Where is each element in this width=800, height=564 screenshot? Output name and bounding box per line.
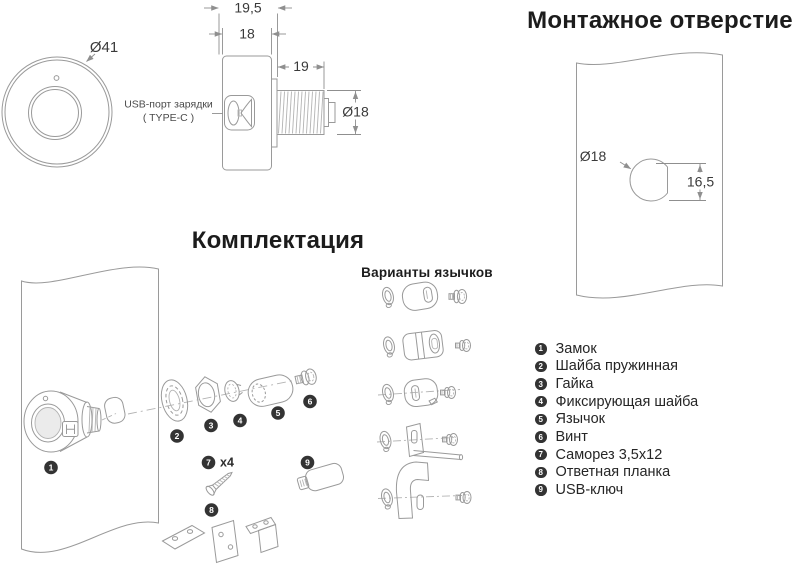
part-number-badge: 2: [535, 361, 547, 373]
svg-text:5: 5: [276, 408, 281, 418]
part-label: Замок: [556, 341, 597, 357]
parts-list-item: 3 Гайка: [535, 375, 698, 393]
part-badge-1: 1: [44, 461, 58, 475]
parts-list-item: 5 Язычок: [535, 411, 698, 429]
part-label: Шайба пружинная: [556, 358, 678, 374]
parts-list-item: 9 USB-ключ: [535, 481, 698, 499]
part-label: Язычок: [556, 411, 606, 427]
part-label: Ответная планка: [556, 464, 671, 480]
part-badge-8: 8: [205, 503, 219, 517]
part-number-badge: 9: [535, 484, 547, 496]
part-label: Фиксирующая шайба: [556, 394, 699, 410]
kit-title: Комплектация: [178, 227, 378, 255]
svg-text:1: 1: [49, 463, 54, 473]
svg-text:7: 7: [206, 458, 211, 468]
part-number-badge: 5: [535, 414, 547, 426]
parts-list-item: 4 Фиксирующая шайба: [535, 393, 698, 411]
svg-text:8: 8: [209, 505, 214, 515]
svg-text:3: 3: [209, 421, 214, 431]
part-number-badge: 3: [535, 378, 547, 390]
part-label: USB-ключ: [556, 482, 624, 498]
usb-label-line1: USB-порт зарядки: [124, 99, 213, 111]
parts-list-item: 2 Шайба пружинная: [535, 358, 698, 376]
svg-text:4: 4: [238, 416, 243, 426]
part-badge-4: 4: [233, 414, 247, 428]
screw-quantity-label: x4: [220, 456, 234, 470]
part-number-badge: 6: [535, 431, 547, 443]
dim-body-label: 18: [239, 26, 255, 42]
part-badge-5: 5: [271, 406, 285, 420]
hole-diameter-label: Ø18: [580, 148, 607, 164]
part-number-badge: 7: [535, 449, 547, 461]
svg-text:2: 2: [175, 431, 180, 441]
part-badge-9: 9: [301, 456, 315, 470]
part-number-badge: 4: [535, 396, 547, 408]
part-badge-6: 6: [303, 395, 317, 409]
part-label: Саморез 3,5х12: [556, 447, 663, 463]
svg-text:6: 6: [308, 397, 313, 407]
parts-list-item: 7 Саморез 3,5х12: [535, 446, 698, 464]
part-badge-3: 3: [204, 419, 218, 433]
front-diameter-label: Ø41: [90, 39, 118, 56]
part-badge-7: 7: [202, 456, 216, 470]
part-number-badge: 1: [535, 343, 547, 355]
dim-total-label: 19,5: [234, 0, 261, 16]
dim-thread-diameter-label: Ø18: [342, 104, 369, 120]
parts-list: 1 Замок 2 Шайба пружинная 3 Гайка 4 Фикс…: [535, 340, 698, 499]
part-label: Гайка: [556, 376, 594, 392]
usb-label-line2: ( TYPE-C ): [143, 112, 194, 124]
technical-drawing-page: Ø41 19,5: [0, 0, 800, 564]
parts-list-item: 8 Ответная планка: [535, 463, 698, 481]
svg-text:9: 9: [305, 458, 310, 468]
mounting-hole-view: Ø18 16,5: [577, 53, 723, 298]
parts-list-item: 1 Замок: [535, 340, 698, 358]
part-number-badge: 8: [535, 467, 547, 479]
parts-list-item: 6 Винт: [535, 428, 698, 446]
variants-title: Варианты язычков: [357, 265, 497, 280]
hole-offset-label: 16,5: [687, 174, 714, 190]
part-badge-2: 2: [170, 429, 184, 443]
dim-thread-length-label: 19: [293, 58, 309, 74]
mounting-hole-title: Монтажное отверстие: [523, 7, 797, 35]
part-label: Винт: [556, 429, 588, 445]
